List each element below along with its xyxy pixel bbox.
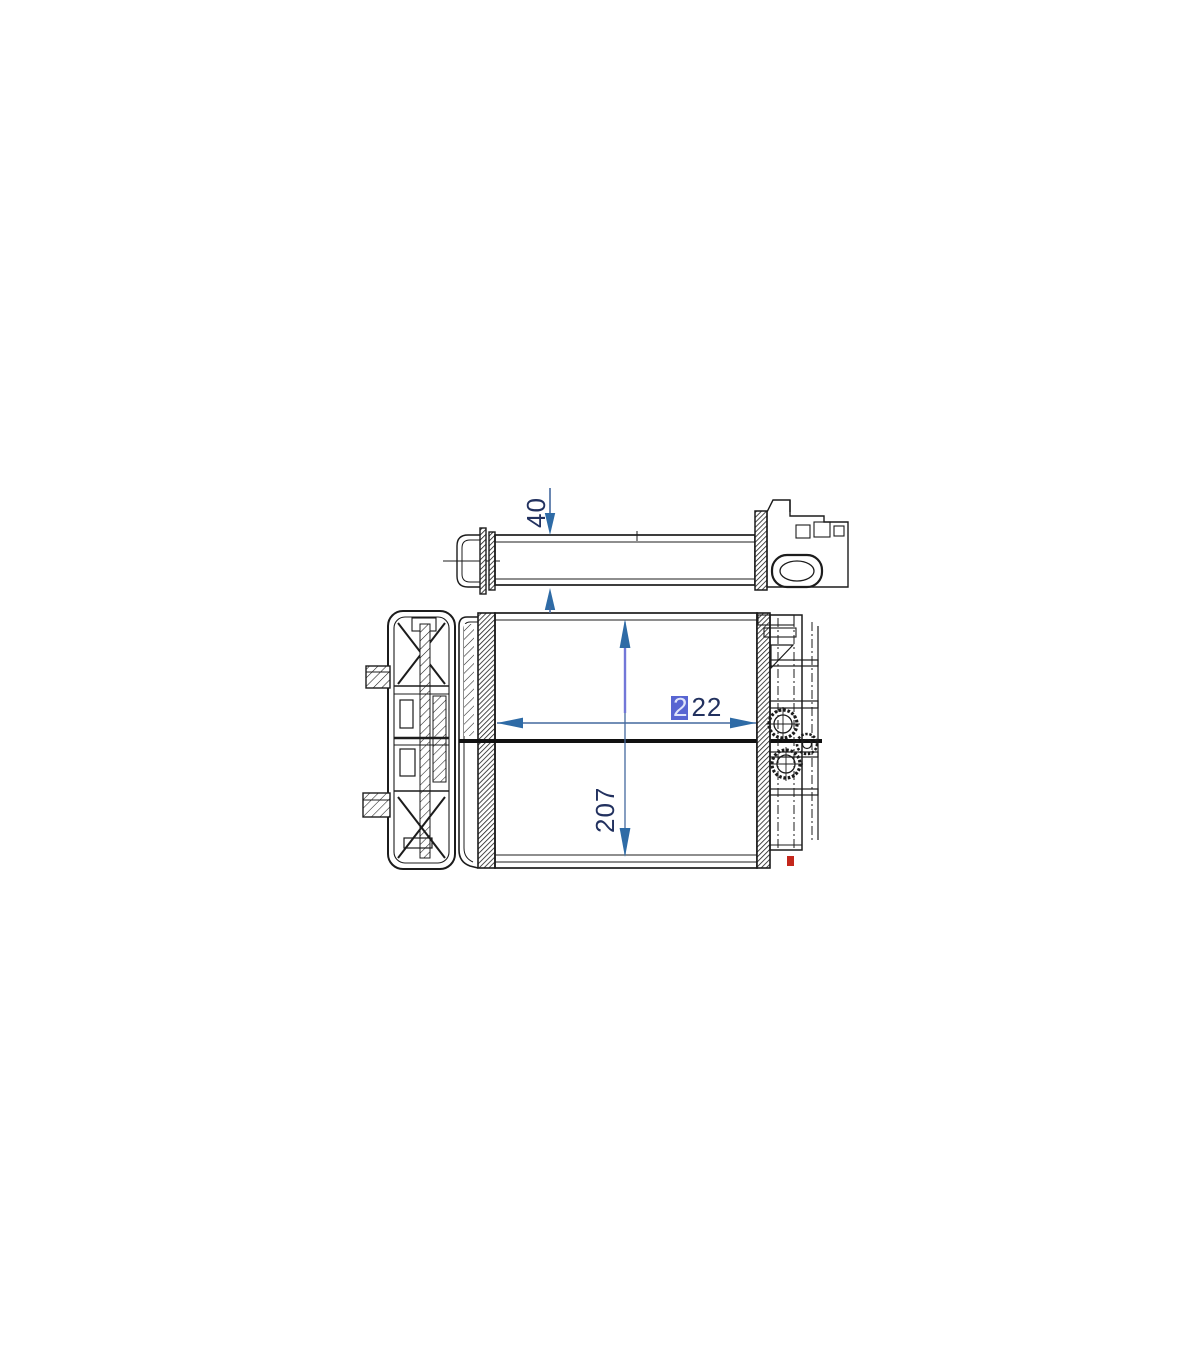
red-mark xyxy=(787,856,794,866)
right-end-bar xyxy=(755,511,767,590)
right-end-plate xyxy=(757,613,770,868)
mount-tab-lower xyxy=(363,793,390,817)
technical-drawing-page: 40 222 207 xyxy=(0,0,1200,1372)
pipe-fitting-upper xyxy=(766,707,800,741)
dim-width-label: 222 xyxy=(673,692,722,722)
arrow-up-icon xyxy=(620,619,631,648)
dimension-height: 207 xyxy=(590,619,630,857)
bracket-detail xyxy=(814,522,830,537)
arrow-down-icon xyxy=(620,828,631,857)
left-flange-bar xyxy=(480,528,486,594)
mount-tab-upper xyxy=(366,666,390,688)
bracket-detail xyxy=(796,525,810,538)
front-view xyxy=(459,613,822,868)
arrow-left-icon xyxy=(497,718,523,729)
left-flange-bar xyxy=(489,532,495,590)
right-bracket xyxy=(767,500,848,587)
arrow-right-icon xyxy=(730,718,756,729)
dim-height-label: 207 xyxy=(590,787,620,833)
pipe-union-bore xyxy=(780,561,814,581)
dimension-width: 222 xyxy=(497,692,756,728)
heater-core-drawing: 40 222 207 xyxy=(0,0,1200,1372)
bracket-detail xyxy=(834,526,844,536)
dim-depth-label: 40 xyxy=(521,497,551,528)
side-view xyxy=(363,611,455,869)
dimension-depth: 40 xyxy=(521,488,555,613)
gasket-hatch xyxy=(464,624,474,736)
pipe-fitting-small xyxy=(797,734,817,754)
top-view xyxy=(443,500,848,594)
tank-wedge xyxy=(771,645,793,668)
